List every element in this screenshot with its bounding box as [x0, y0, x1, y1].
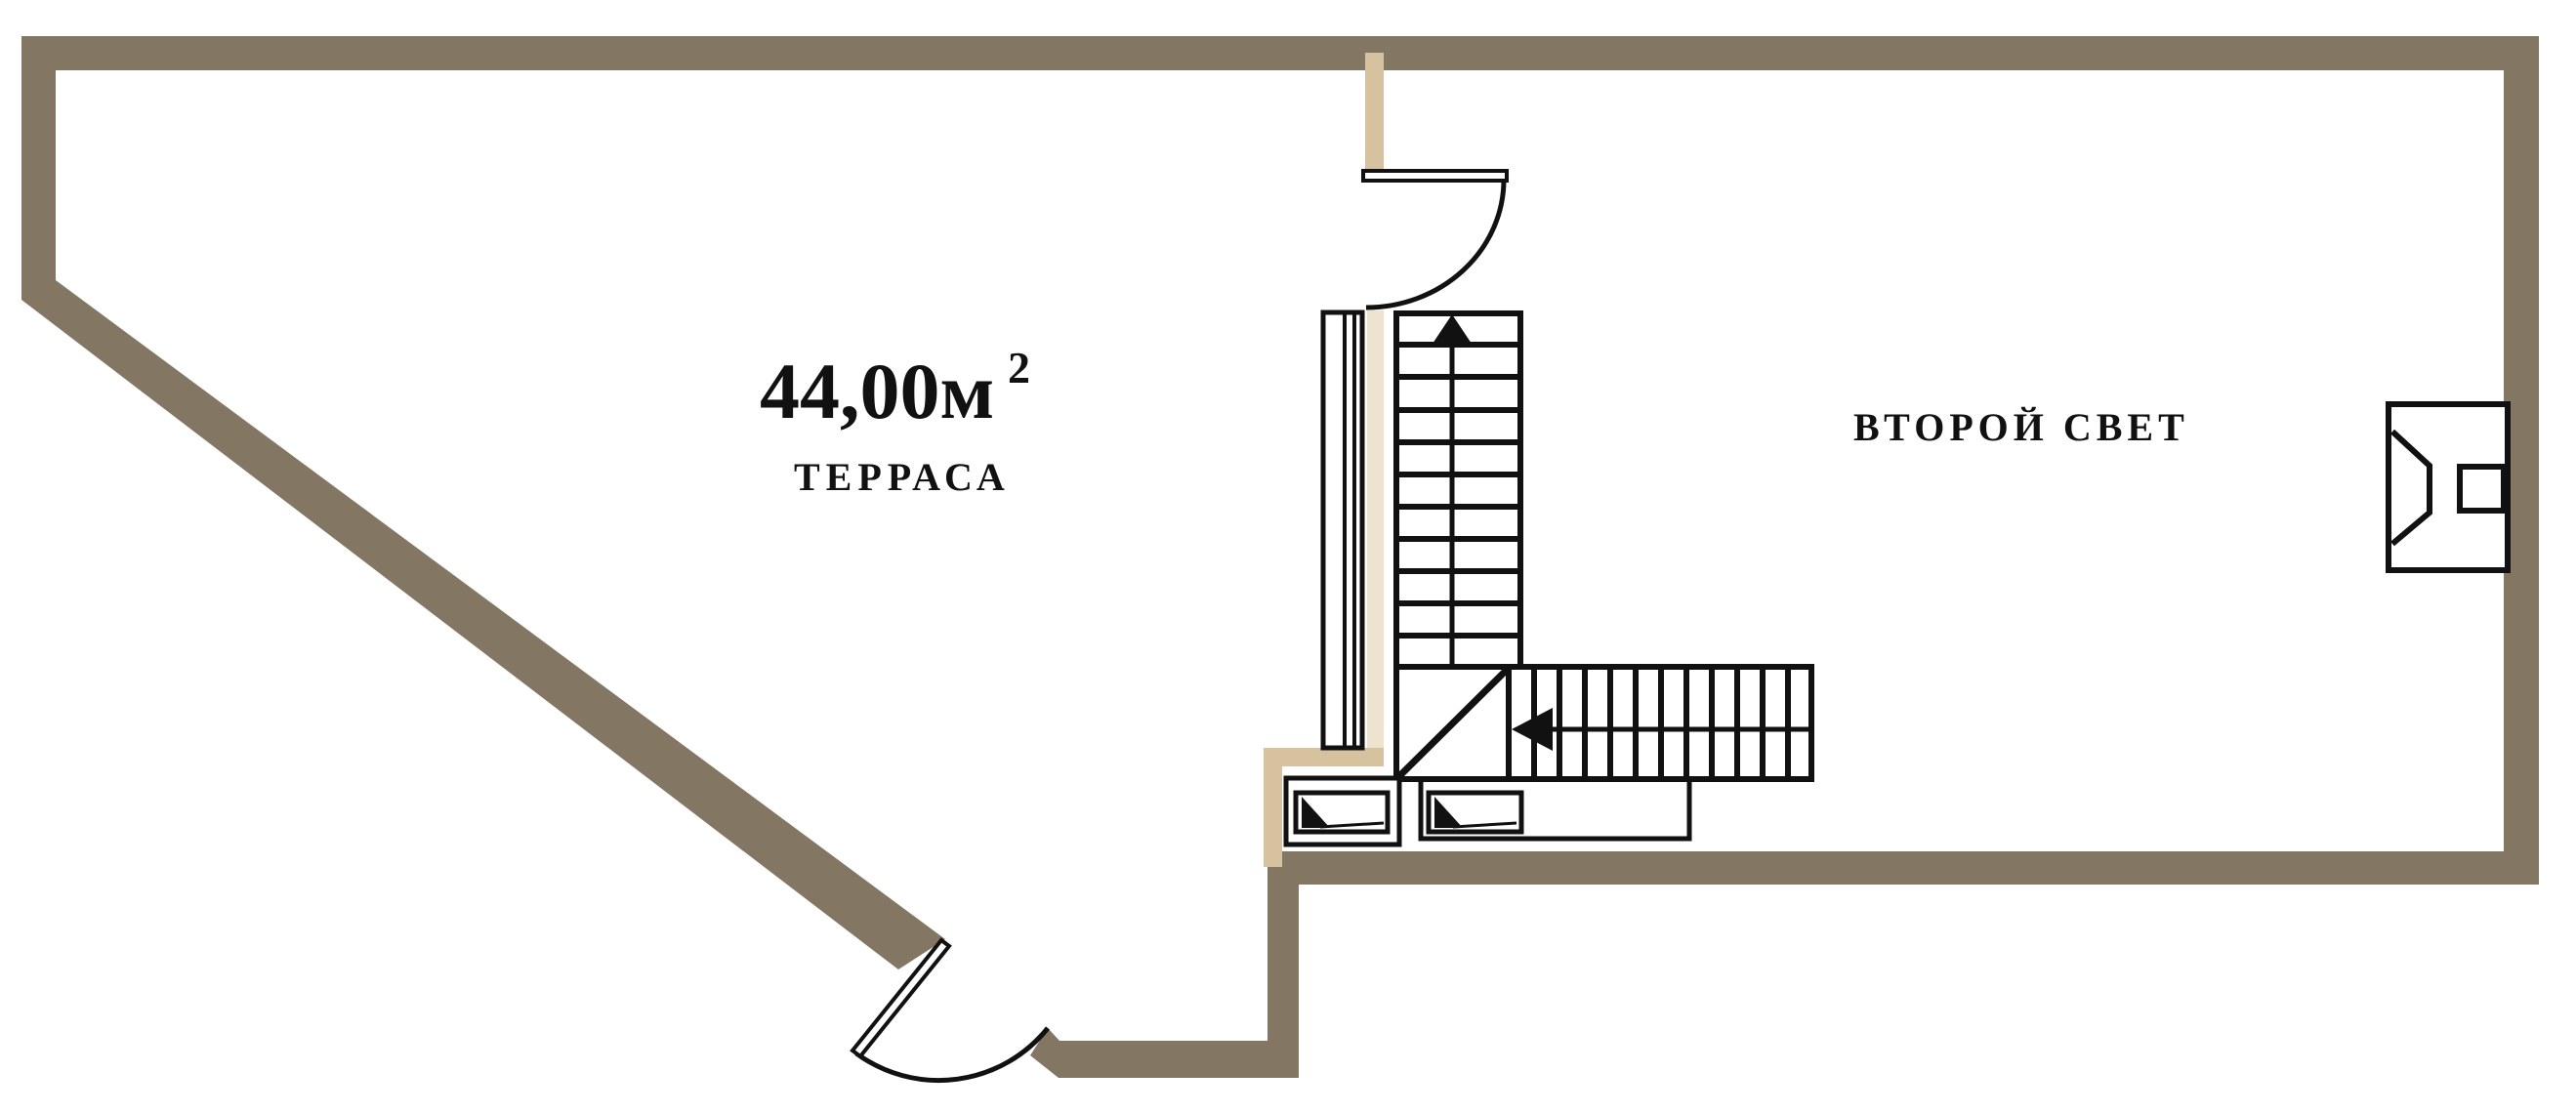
second-light-room-label: ВТОРОЙ СВЕТ: [1853, 405, 2189, 449]
staircase: [1396, 313, 1811, 839]
terrace-area-superscript: 2: [1008, 343, 1030, 392]
terrace-room-label: ТЕРРАСА: [794, 455, 1011, 499]
fireplace-symbol: [2389, 404, 2508, 570]
door-top: [1363, 171, 1507, 308]
door-leaf: [1363, 171, 1507, 181]
bottom-left-wall: [1030, 1028, 1299, 1078]
roof-window-symbol-1: [1286, 778, 1399, 845]
floor-plan-drawing: 44,00м 2 ТЕРРАСА ВТОРОЙ СВЕТ: [0, 0, 2576, 1113]
stair-railing: [1323, 312, 1362, 748]
door-swing-arc: [856, 1028, 1048, 1081]
bottom-right-wall: [1282, 851, 2539, 885]
fireplace-body: [2389, 404, 2508, 570]
floor-plan: 44,00м 2 ТЕРРАСА ВТОРОЙ СВЕТ: [0, 0, 2576, 1113]
tan-wall-vertical: [1264, 748, 1282, 867]
roof-window-symbol-2: [1429, 793, 1521, 832]
roof-window-symbols: [1286, 778, 1521, 845]
exterior-walls: [21, 36, 2539, 1078]
left-wall: [21, 36, 56, 300]
door-jamb-wall-top: [1365, 53, 1384, 171]
door-bottom: [852, 940, 1048, 1081]
top-wall: [21, 36, 2539, 70]
stair-flight-up: [1396, 313, 1520, 667]
stair-side-wall: [1367, 310, 1384, 748]
terrace-area-value: 44,00м: [760, 347, 994, 435]
door-swing-arc: [1366, 180, 1504, 308]
